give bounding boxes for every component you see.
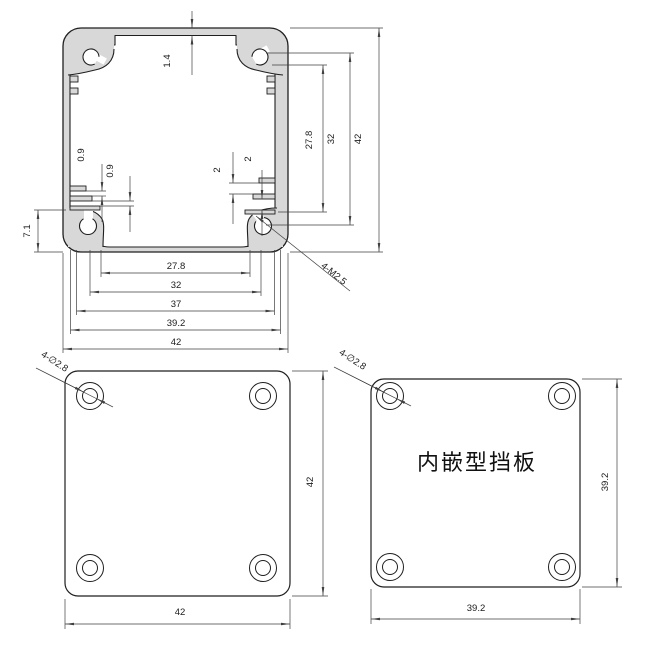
profile-section-view: 1.4 27.8 32 42 7.1 0.9 0.9 2 2 27.8 32 3… [22,11,383,353]
pcb-slot-fin [259,178,275,183]
dim-left-slot-1: 0.9 [76,148,87,161]
end-plate-width-dim: 42 [175,607,186,618]
inset-plate-width-dim: 39.2 [467,603,486,614]
pcb-slot-fin [253,194,275,199]
mounting-hole [383,389,398,404]
inset-plate-view: 4-∅2.8 内嵌型挡板 39.2 39.2 [334,347,622,624]
end-plate-hole-callout: 4-∅2.8 [39,349,70,375]
screw-boss-bottom-left [79,219,96,235]
dim-right-slot-2: 2 [243,156,254,161]
wall-tooth [267,76,275,82]
engineering-drawing-page: 1.4 27.8 32 42 7.1 0.9 0.9 2 2 27.8 32 3… [0,0,650,650]
wall-tooth [70,88,78,94]
dim-left-slot-2: 0.9 [105,164,116,177]
dim-right-middle: 32 [326,134,337,145]
dim-bottom-1: 27.8 [167,261,186,272]
wall-tooth [267,88,275,94]
mounting-hole [555,389,570,404]
dim-left-height: 7.1 [22,224,33,237]
mounting-hole [555,560,570,575]
dim-bottom-4: 39.2 [167,318,186,329]
dim-bottom-2: 32 [171,280,182,291]
mounting-hole [256,389,271,404]
thread-callout: 4-M2.5 [319,260,349,287]
mounting-hole [83,561,98,576]
dim-wall-thickness: 1.4 [162,54,173,67]
end-plate-view: 4-∅2.8 42 42 [36,349,328,629]
wall-tooth [70,76,78,82]
drawing-canvas: 1.4 27.8 32 42 7.1 0.9 0.9 2 2 27.8 32 3… [0,0,650,650]
inset-plate-height-dim: 39.2 [600,473,611,492]
pcb-slot-fin [245,210,275,214]
pcb-slot-fin [70,186,86,191]
pcb-slot-fin [70,196,92,201]
inset-plate-hole-callout: 4-∅2.8 [337,347,368,373]
dim-right-outer: 42 [353,134,364,145]
inset-plate-outline [371,379,580,587]
dim-bottom-3: 37 [171,299,182,310]
end-plate-height-dim: 42 [305,477,316,488]
pcb-slot-fin [70,206,100,210]
mounting-hole [383,560,398,575]
inset-plate-label: 内嵌型挡板 [417,450,537,475]
mounting-hole [83,389,98,404]
dim-bottom-5: 42 [171,337,182,348]
dim-right-inner: 27.8 [304,131,315,150]
mounting-hole [256,561,271,576]
dim-right-slot-1: 2 [212,167,223,172]
